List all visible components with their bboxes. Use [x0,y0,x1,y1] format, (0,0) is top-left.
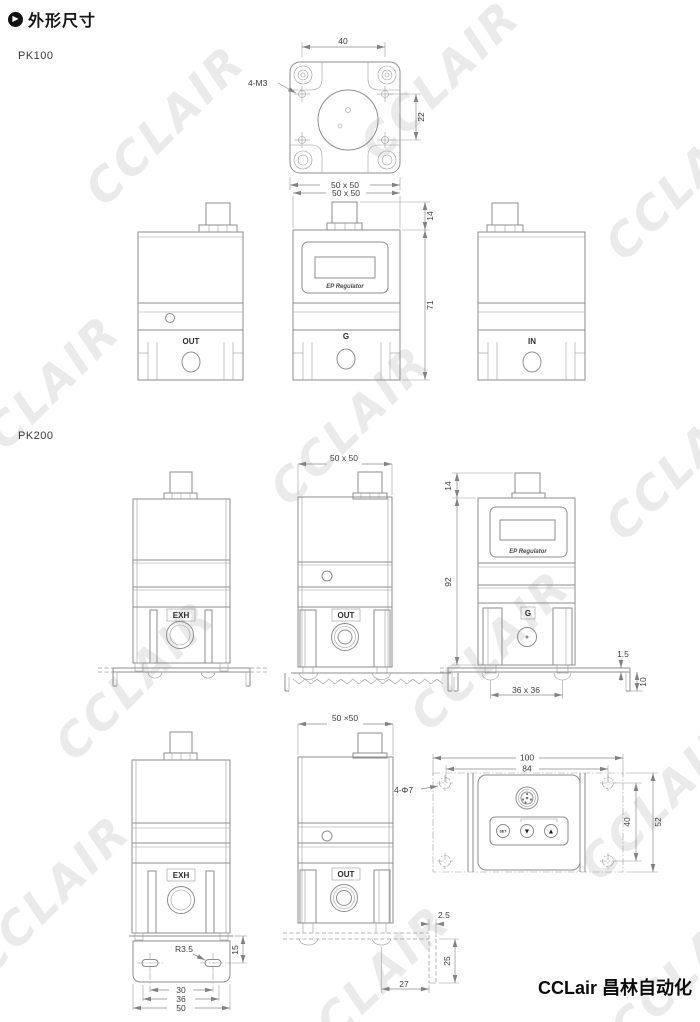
watermark: CCLAIR [74,34,256,216]
up-arrow-icon: ▲ [548,829,555,836]
dim-leg: 25 [442,956,452,966]
pk200-panel-view: 100 84 SET ▼ ▲ 40 52 [390,745,675,885]
dim-plate: 1.5 [617,649,629,659]
dim-bolts: 36 x 36 [512,685,540,695]
brand-footer: CCLair 昌林自动化 [0,974,692,1000]
center-bore [318,90,378,150]
pk200-view-g: 14 92 EP Regulator G 1.5 10 36 x 36 [440,462,700,707]
dim-face: 50 ×50 [332,713,359,723]
page-title: 外形尺寸 [28,7,96,31]
slot-radius-label: R3.5 [175,944,193,954]
corner-bolt-holes [294,66,396,169]
port-label-out: OUT [183,337,200,346]
dim-face: 50 x 50 [332,188,360,198]
display-label: EP Regulator [326,284,364,290]
datasheet-page: CCLAIR CCLAIR CCLAIR CCLAIR CCLAIR CCLAI… [0,0,700,1022]
dim-hole-width: 84 [522,764,532,774]
dim-plate-height: 52 [653,817,663,827]
pk100-view-front: 50 x 50 EP Regulator G 14 71 [282,183,437,397]
port-label-exh: EXH [173,611,190,620]
display-label: EP Regulator [509,549,547,555]
port-label-exh: EXH [173,871,190,880]
section-header: ▶ 外形尺寸 [8,7,96,31]
dim-50: 50 [176,1003,186,1013]
dim-body: 71 [425,300,435,310]
port-label-out: OUT [338,870,355,879]
port-label-out: OUT [338,611,355,620]
set-button-label: SET [500,830,508,834]
pk100-view-in: IN [462,197,597,397]
dim-plate-width: 100 [520,753,534,763]
dim-hook: 10 [638,677,648,687]
dim-slot: 15 [230,945,240,955]
watermark: CCLAIR [594,89,700,271]
model-label-pk100: PK100 [18,50,54,62]
down-arrow-icon: ▼ [524,829,531,836]
port-label-in: IN [528,337,536,346]
panel-mount-holes [437,775,616,869]
dim-height: 22 [416,112,426,122]
watermark: CCLAIR [0,304,131,486]
dim-connector: 14 [425,211,435,221]
m12-connector [516,787,538,809]
pk100-top-view: 40 4-M3 22 50 x 50 [240,33,445,195]
port-label-g: G [343,332,349,341]
pk200-view-exh: EXH [98,462,268,702]
dim-body: 92 [443,577,453,587]
dim-width: 40 [338,36,348,46]
dim-connector: 14 [443,481,453,491]
port-label-g: G [525,609,531,618]
dim-hole-height: 40 [622,817,632,827]
dim-thickness: 2.5 [438,910,450,920]
pk200-bracket-view-exh: EXH R3.5 15 30 36 50 [93,722,268,1017]
panel-holes-label: 4-Φ7 [394,785,413,795]
dim-face: 50 x 50 [330,453,358,463]
play-badge-icon: ▶ [8,12,23,27]
pk100-view-out: OUT [125,197,260,397]
thread-label: 4-M3 [248,78,268,88]
model-label-pk200: PK200 [18,430,54,442]
pk200-view-out: 50 x 50 OUT [283,448,460,700]
